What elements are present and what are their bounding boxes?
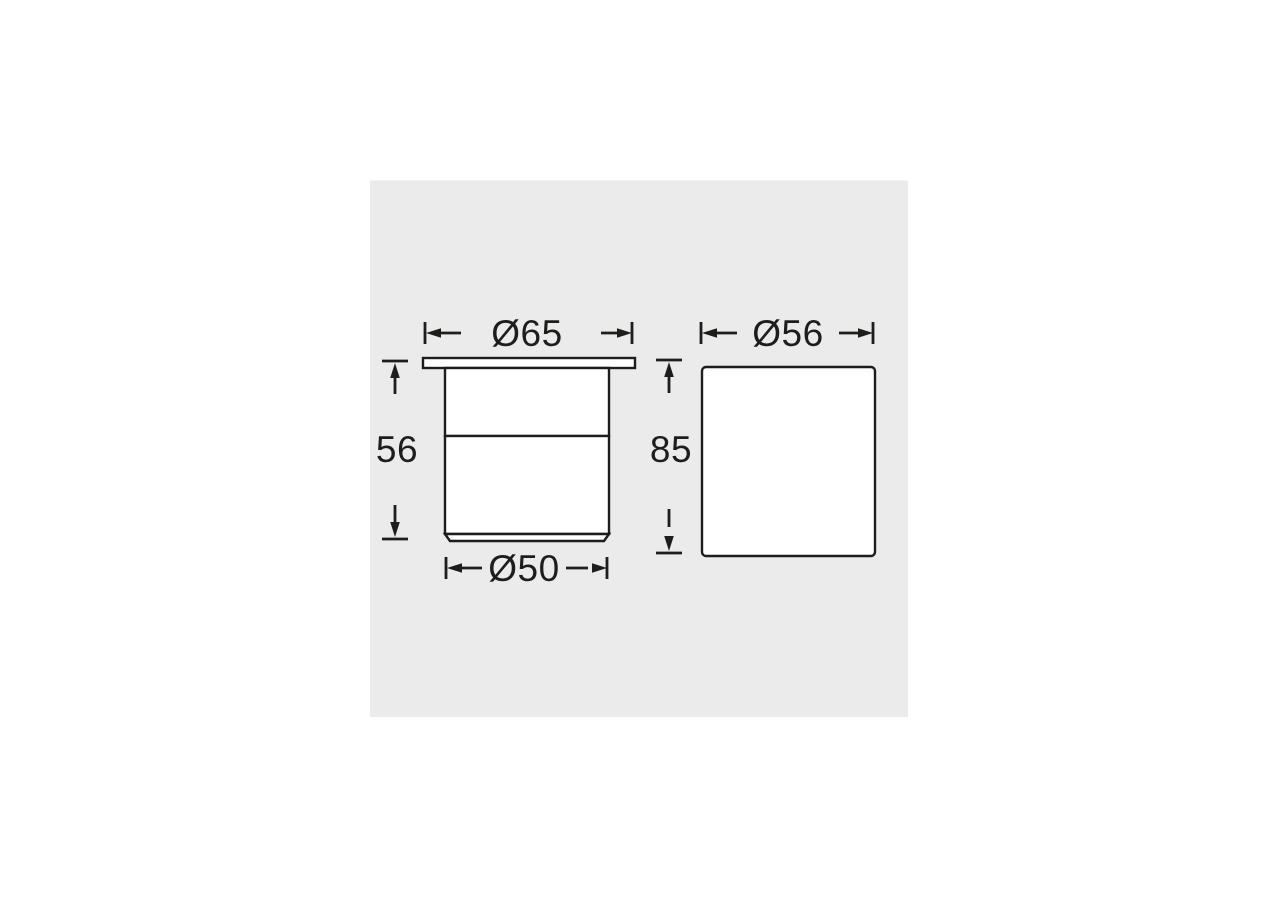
arrow-down-icon <box>664 536 674 551</box>
fixture-upper-body <box>445 368 609 436</box>
front-body-diameter-label: Ø50 <box>488 548 559 589</box>
arrow-up-icon <box>390 363 400 378</box>
side-diameter-label: Ø56 <box>752 313 823 354</box>
technical-drawing: Ø65 56 <box>370 181 908 718</box>
arrow-down-icon <box>390 522 400 537</box>
side-diameter-dimension: Ø56 <box>701 313 873 354</box>
side-view: Ø56 85 <box>650 313 875 556</box>
fixture-bottom-cap <box>445 534 609 541</box>
page-canvas: Ø65 56 <box>0 0 1280 900</box>
drawing-panel: Ø65 56 <box>370 180 908 717</box>
arrow-left-icon <box>702 328 717 338</box>
side-body-outline <box>702 367 875 556</box>
front-height-dimension: 56 <box>376 361 418 539</box>
arrow-up-icon <box>664 362 674 377</box>
arrow-right-icon <box>617 328 632 338</box>
arrow-left-icon <box>426 328 441 338</box>
fixture-flange <box>423 358 635 368</box>
front-flange-diameter-label: Ø65 <box>491 313 562 354</box>
arrow-left-icon <box>447 563 462 573</box>
fixture-ribbed-heatsink <box>445 436 609 534</box>
front-body-diameter-dimension: Ø50 <box>446 548 607 589</box>
arrow-right-icon <box>592 563 607 573</box>
side-height-dimension: 85 <box>650 360 692 553</box>
side-height-label: 85 <box>650 429 692 470</box>
front-height-label: 56 <box>376 429 418 470</box>
front-flange-diameter-dimension: Ø65 <box>425 313 632 354</box>
arrow-right-icon <box>858 328 873 338</box>
front-view: Ø65 56 <box>376 313 635 589</box>
